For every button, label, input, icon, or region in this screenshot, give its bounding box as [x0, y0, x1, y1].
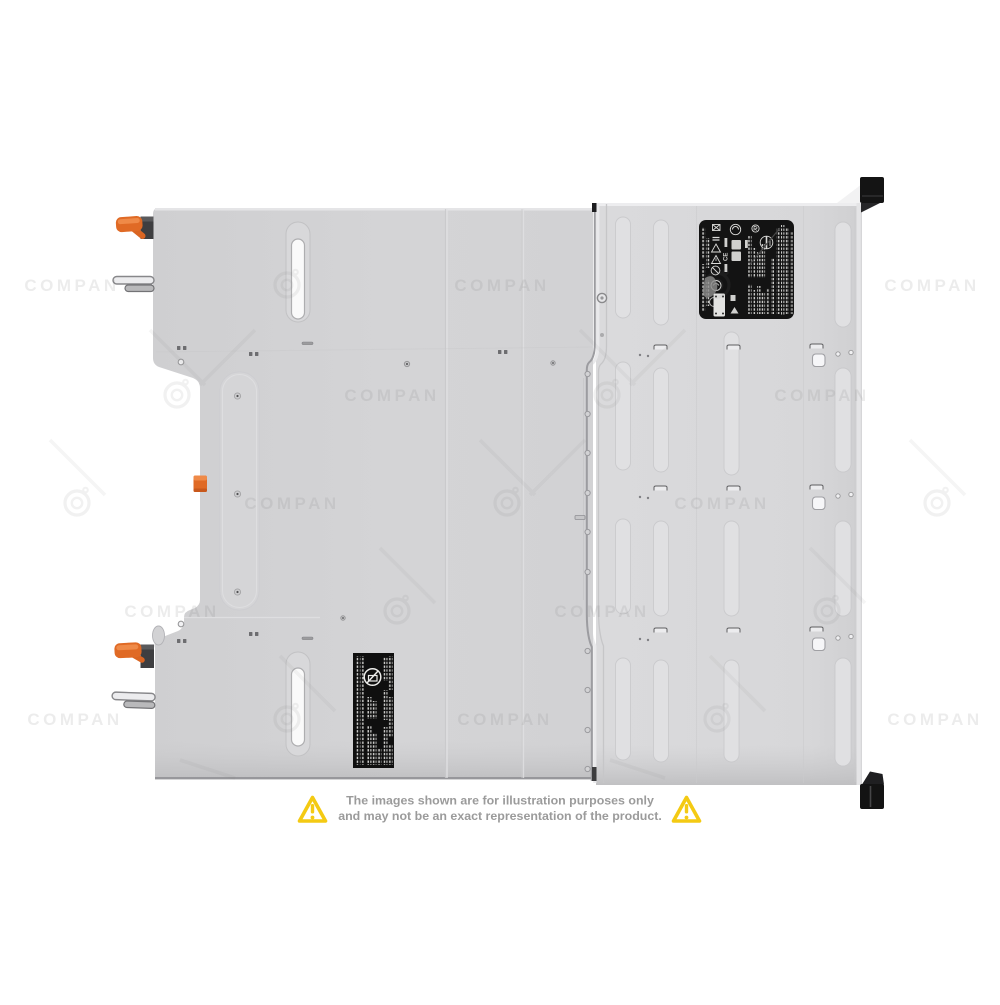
svg-text:COMPAN: COMPAN: [554, 602, 649, 621]
svg-text:COMPAN: COMPAN: [24, 276, 119, 295]
svg-text:COMPAN: COMPAN: [884, 276, 979, 295]
svg-text:COMPAN: COMPAN: [27, 710, 122, 729]
svg-text:COMPAN: COMPAN: [344, 386, 439, 405]
svg-text:and may not be an exact repres: and may not be an exact representation o…: [338, 809, 662, 823]
svg-text:COMPAN: COMPAN: [674, 494, 769, 513]
svg-text:The images shown are for illus: The images shown are for illustration pu…: [346, 794, 654, 808]
svg-text:COMPAN: COMPAN: [454, 276, 549, 295]
svg-text:COMPAN: COMPAN: [457, 710, 552, 729]
svg-text:COMPAN: COMPAN: [124, 602, 219, 621]
svg-text:CE: CE: [724, 253, 730, 261]
svg-text:COMPAN: COMPAN: [774, 386, 869, 405]
svg-text:COMPAN: COMPAN: [887, 710, 982, 729]
svg-text:COMPAN: COMPAN: [244, 494, 339, 513]
